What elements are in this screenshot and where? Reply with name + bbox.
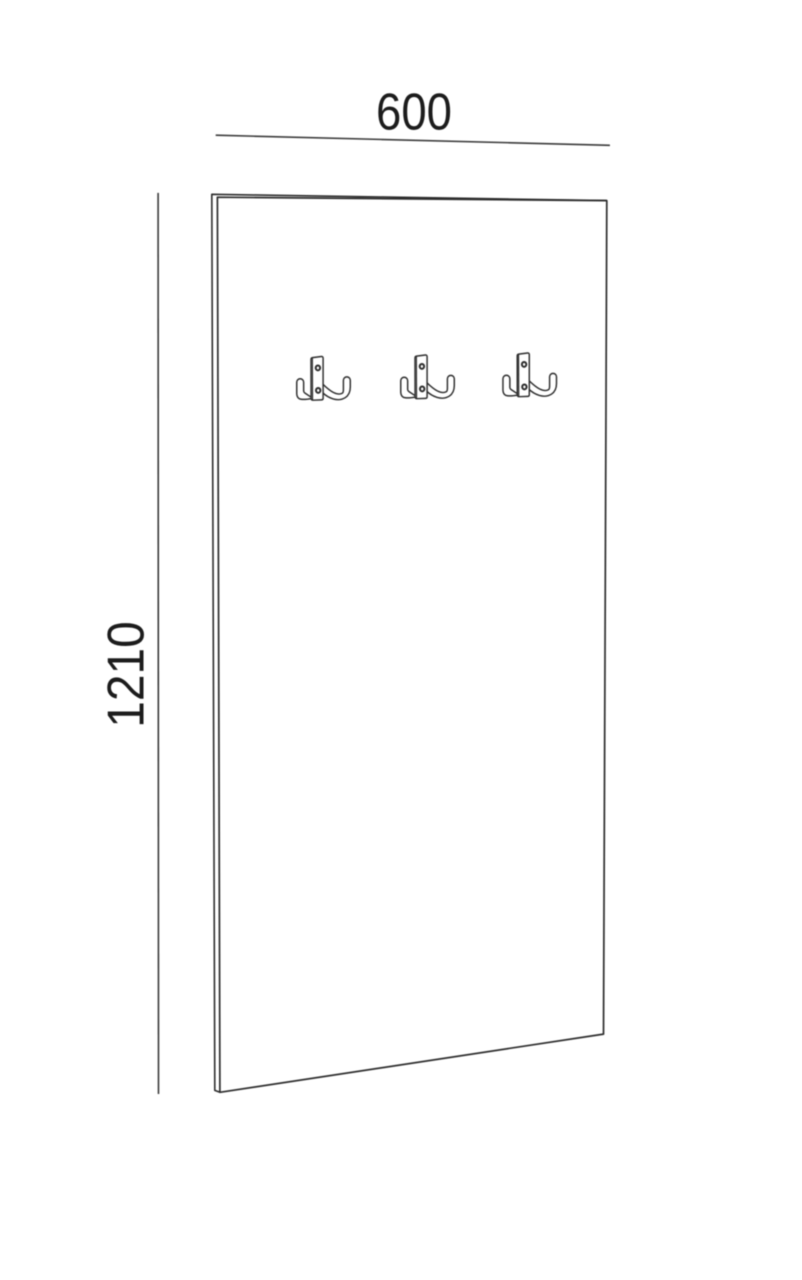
svg-text:1210: 1210 [97,621,155,727]
svg-text:600: 600 [376,84,452,141]
